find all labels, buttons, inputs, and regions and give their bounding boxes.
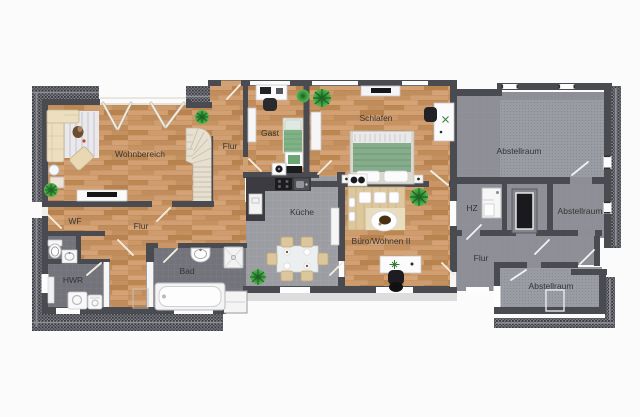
svg-text:Büro/Wohnen II: Büro/Wohnen II xyxy=(352,236,411,246)
svg-text:Abstellraum: Abstellraum xyxy=(558,206,603,216)
svg-text:Flur: Flur xyxy=(223,141,238,151)
svg-text:WF: WF xyxy=(68,216,81,226)
svg-text:Flur: Flur xyxy=(134,221,149,231)
svg-text:Küche: Küche xyxy=(290,207,314,217)
svg-text:Schlafen: Schlafen xyxy=(359,113,392,123)
svg-text:HZ: HZ xyxy=(466,203,477,213)
svg-text:HWR: HWR xyxy=(63,275,83,285)
svg-text:Flur: Flur xyxy=(474,253,489,263)
svg-text:Bad: Bad xyxy=(179,266,194,276)
svg-text:Gast: Gast xyxy=(261,128,280,138)
svg-text:Abstellraum: Abstellraum xyxy=(529,281,574,291)
svg-text:Abstellraum: Abstellraum xyxy=(497,146,542,156)
svg-text:Wohnbereich: Wohnbereich xyxy=(115,149,165,159)
